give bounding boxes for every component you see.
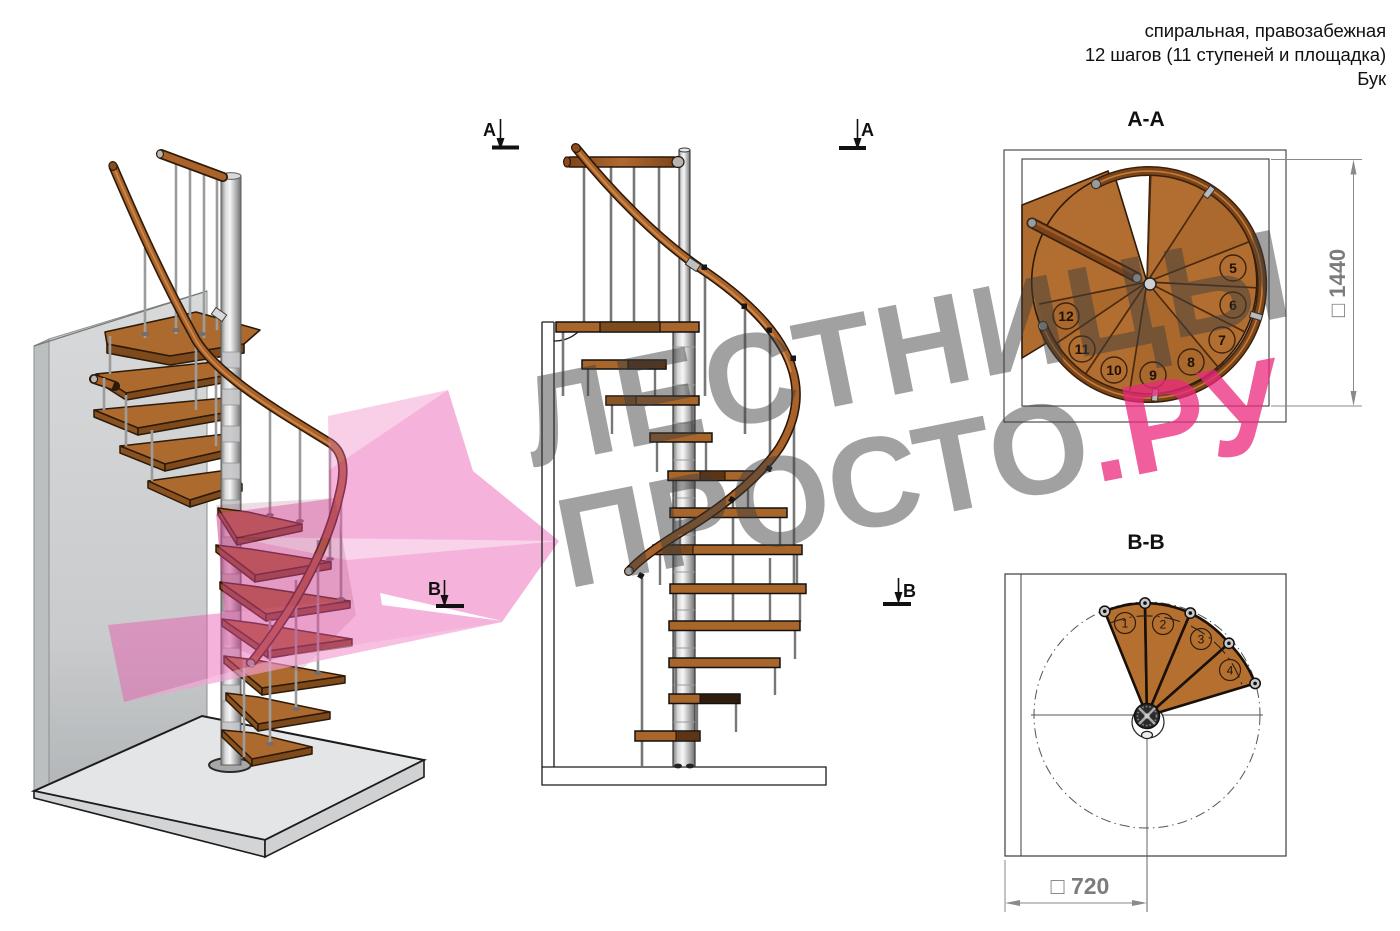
svg-text:1: 1 (1122, 617, 1129, 631)
svg-text:12 шагов (11 ступеней и площад: 12 шагов (11 ступеней и площадка) (1085, 44, 1386, 65)
svg-text:3: 3 (1198, 633, 1205, 647)
svg-text:4: 4 (1227, 664, 1234, 678)
svg-text:B: B (903, 581, 916, 601)
svg-text:A: A (861, 120, 874, 140)
svg-text:□ 1440: □ 1440 (1325, 249, 1350, 317)
svg-text:A: A (483, 120, 496, 140)
svg-text:А-А: А-А (1127, 108, 1164, 131)
svg-text:B: B (428, 579, 441, 599)
svg-text:спиральная, правозабежная: спиральная, правозабежная (1145, 20, 1386, 41)
svg-text:В-В: В-В (1127, 531, 1164, 554)
svg-text:2: 2 (1160, 618, 1167, 632)
svg-text:□ 720: □ 720 (1051, 873, 1110, 899)
svg-text:Бук: Бук (1357, 68, 1387, 89)
